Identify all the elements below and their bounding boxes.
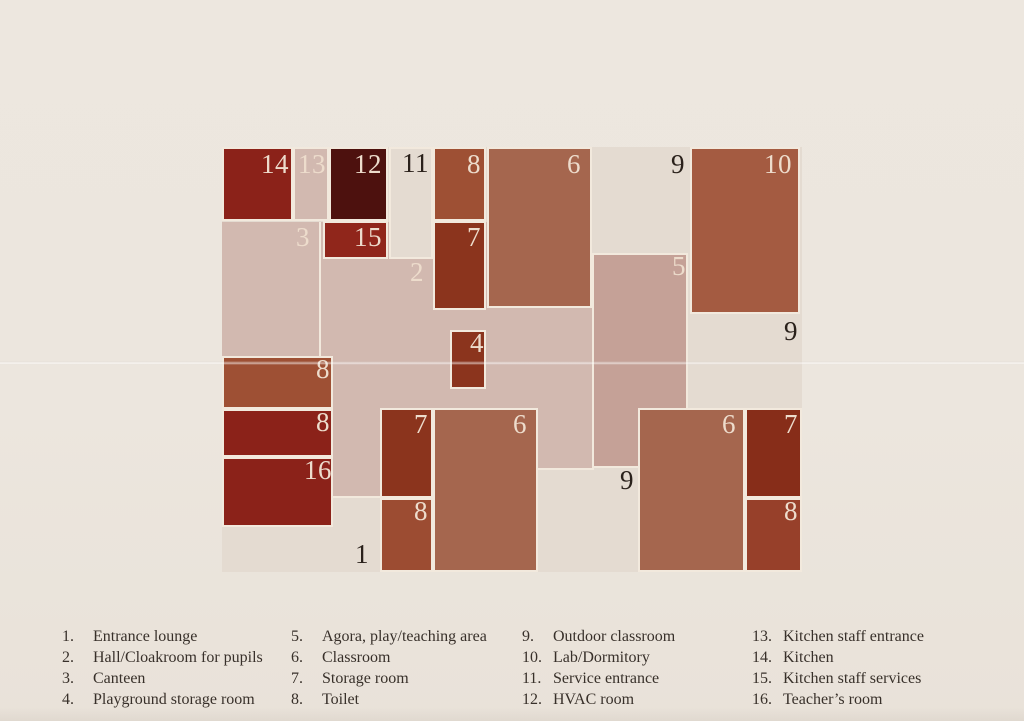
- legend-column-2: 5.Agora, play/teaching area6.Classroom7.…: [291, 626, 487, 710]
- legend-item-label: Agora, play/teaching area: [322, 626, 487, 647]
- legend-item: 13.Kitchen staff entrance: [752, 626, 924, 647]
- hall-extension-bottom: [333, 496, 380, 498]
- room-label-7-10: 7: [467, 223, 481, 251]
- room-label-13-1: 13: [298, 150, 326, 178]
- legend-item-number: 5.: [291, 626, 322, 647]
- legend-column-1: 1.Entrance lounge2.Hall/Cloakroom for pu…: [62, 626, 263, 710]
- legend-item-number: 2.: [62, 647, 93, 668]
- legend-item-label: Kitchen staff entrance: [783, 626, 924, 647]
- room-label-3-8: 3: [296, 223, 310, 251]
- legend-item: 4.Playground storage room: [62, 689, 263, 710]
- legend-item-label: Outdoor classroom: [553, 626, 675, 647]
- room-label-7-23: 7: [784, 410, 798, 438]
- legend-item-label: Teacher’s room: [783, 689, 882, 710]
- legend-item-number: 7.: [291, 668, 322, 689]
- legend-item: 3.Canteen: [62, 668, 263, 689]
- room-label-2-11: 2: [410, 258, 424, 286]
- legend-item-label: Kitchen: [783, 647, 834, 668]
- legend-item-number: 8.: [291, 689, 322, 710]
- legend-item-number: 10.: [522, 647, 553, 668]
- legend-item: 9.Outdoor classroom: [522, 626, 675, 647]
- legend-column-3: 9.Outdoor classroom10.Lab/Dormitory11.Se…: [522, 626, 675, 710]
- legend-item: 14.Kitchen: [752, 647, 924, 668]
- room-label-12-2: 12: [354, 150, 382, 178]
- room-label-8-19: 8: [414, 497, 428, 525]
- room-label-6-20: 6: [513, 410, 527, 438]
- legend-item: 12.HVAC room: [522, 689, 675, 710]
- legend-item: 16.Teacher’s room: [752, 689, 924, 710]
- room-label-8-24: 8: [784, 497, 798, 525]
- room-label-11-3: 11: [402, 149, 429, 177]
- legend-item-number: 1.: [62, 626, 93, 647]
- legend-item: 2.Hall/Cloakroom for pupils: [62, 647, 263, 668]
- room-label-9-14: 9: [784, 317, 798, 345]
- legend-item: 10.Lab/Dormitory: [522, 647, 675, 668]
- room-label-6-5: 6: [567, 150, 581, 178]
- legend-item-number: 12.: [522, 689, 553, 710]
- legend-item: 15.Kitchen staff services: [752, 668, 924, 689]
- legend-item-number: 11.: [522, 668, 553, 689]
- room-label-7-18: 7: [414, 410, 428, 438]
- legend-item-number: 9.: [522, 626, 553, 647]
- room-label-8-15: 8: [316, 355, 330, 383]
- legend-item-label: Entrance lounge: [93, 626, 197, 647]
- legend-item: 8.Toilet: [291, 689, 487, 710]
- room-label-8-16: 8: [316, 408, 330, 436]
- legend-item-number: 13.: [752, 626, 783, 647]
- zone-hall-extension: [333, 464, 380, 498]
- legend-item-label: Kitchen staff services: [783, 668, 921, 689]
- legend-item-number: 6.: [291, 647, 322, 668]
- legend-item-label: Service entrance: [553, 668, 659, 689]
- legend-item-number: 16.: [752, 689, 783, 710]
- room-label-14-0: 14: [261, 150, 289, 178]
- hall-bottom-east: [538, 468, 594, 470]
- room-label-10-7: 10: [764, 150, 792, 178]
- room-label-8-4: 8: [467, 150, 481, 178]
- legend-item-label: HVAC room: [553, 689, 634, 710]
- legend-column-4: 13.Kitchen staff entrance14.Kitchen15.Ki…: [752, 626, 924, 710]
- divider-3-2: [319, 222, 321, 358]
- legend-item-label: Canteen: [93, 668, 145, 689]
- room-label-15-9: 15: [354, 223, 382, 251]
- room-label-1-25: 1: [355, 540, 369, 568]
- legend-item: 11.Service entrance: [522, 668, 675, 689]
- legend-item-number: 3.: [62, 668, 93, 689]
- legend-item-label: Playground storage room: [93, 689, 255, 710]
- scanned-floorplan-page: 141312118691031572549881678696781 1.Entr…: [0, 0, 1024, 721]
- legend-item-label: Hall/Cloakroom for pupils: [93, 647, 263, 668]
- room-label-6-22: 6: [722, 410, 736, 438]
- legend-item: 6.Classroom: [291, 647, 487, 668]
- room-label-5-12: 5: [672, 252, 686, 280]
- legend-item-label: Classroom: [322, 647, 390, 668]
- legend-item-label: Toilet: [322, 689, 359, 710]
- room-label-4-13: 4: [470, 329, 484, 357]
- room-label-9-6: 9: [671, 150, 685, 178]
- legend-item-number: 14.: [752, 647, 783, 668]
- legend-item: 1.Entrance lounge: [62, 626, 263, 647]
- room-label-9-21: 9: [620, 466, 634, 494]
- legend-item: 5.Agora, play/teaching area: [291, 626, 487, 647]
- room-label-16-17: 16: [304, 456, 332, 484]
- legend-item: 7.Storage room: [291, 668, 487, 689]
- legend-item-label: Storage room: [322, 668, 409, 689]
- legend-item-label: Lab/Dormitory: [553, 647, 650, 668]
- legend-item-number: 15.: [752, 668, 783, 689]
- legend-item-number: 4.: [62, 689, 93, 710]
